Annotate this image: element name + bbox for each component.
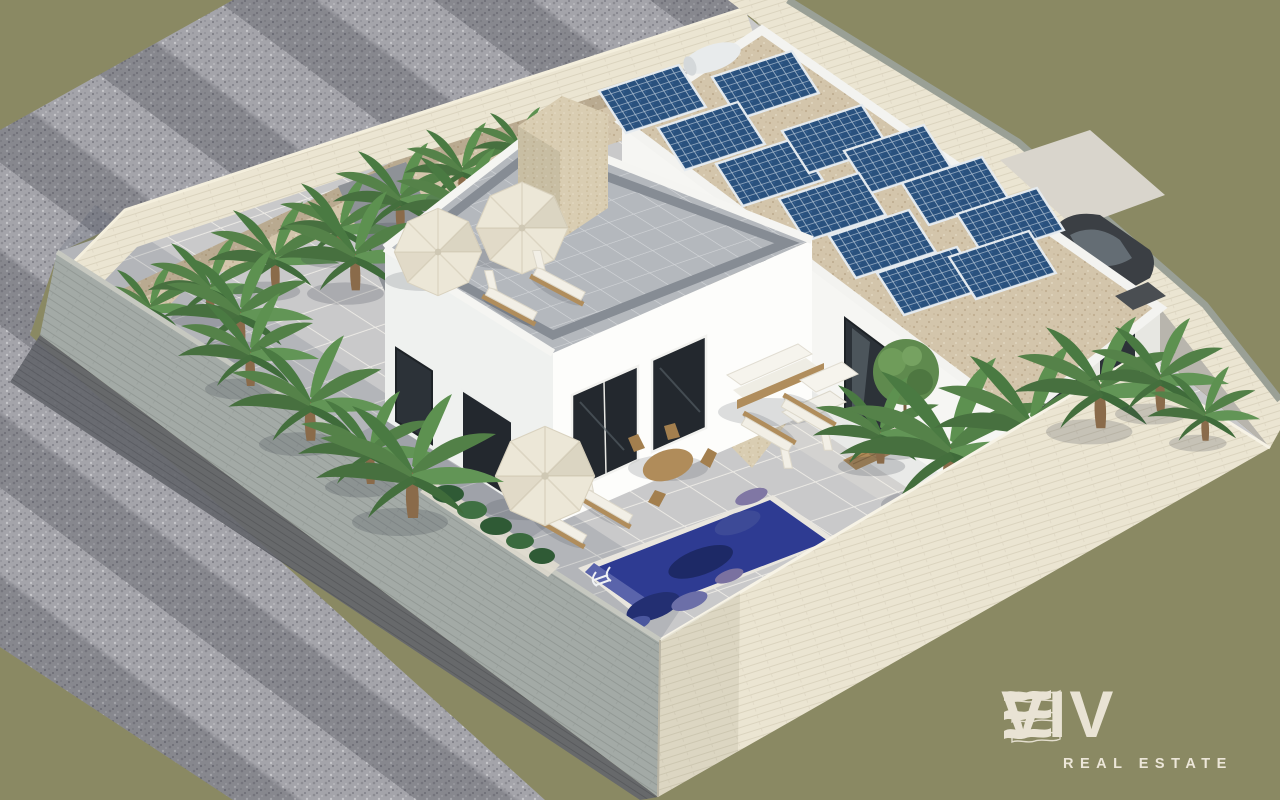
logo-tagline: REAL ESTATE xyxy=(1063,756,1233,772)
render-canvas: VIV REAL ESTATE xyxy=(0,0,1280,800)
logo-wave-bars-outline-icon xyxy=(1010,688,1062,744)
logo-row: VIV xyxy=(1001,686,1233,742)
brand-logo: VIV REAL ESTATE xyxy=(1001,686,1233,772)
